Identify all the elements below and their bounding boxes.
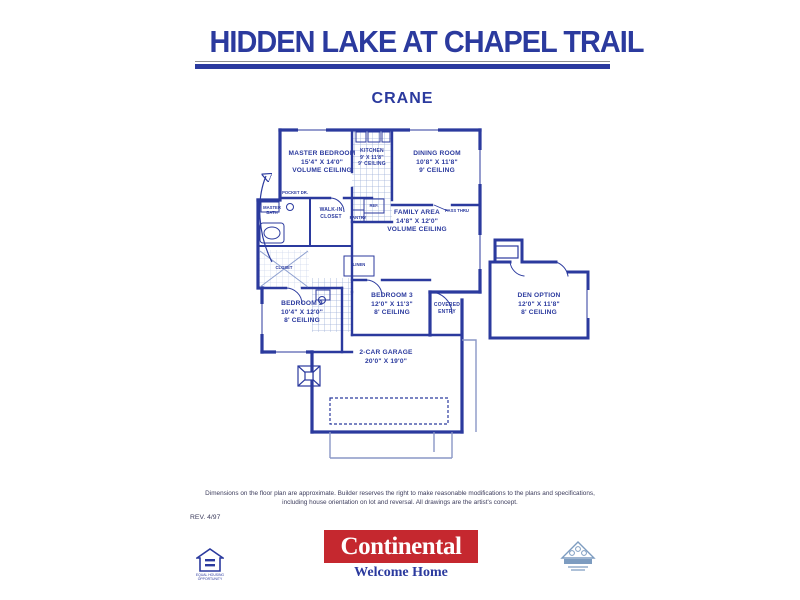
label-closet: CLOSET (276, 265, 293, 270)
disclaimer: Dimensions on the floor plan are approxi… (0, 489, 800, 508)
label-family-area: FAMILY AREA14'8" X 12'0"VOLUME CEILING (387, 209, 447, 235)
builder-association-logo (558, 540, 598, 574)
continental-logo: Continental (324, 530, 478, 563)
disclaimer-line-2: including house orientation on lot and r… (0, 498, 800, 507)
welcome-home-tagline: Welcome Home (324, 565, 478, 581)
label-pantry: PANTRY (350, 215, 367, 220)
continental-wordmark: Continental (341, 534, 462, 559)
label-walk-in-closet: WALK-INCLOSET (320, 207, 343, 220)
label-linen: LINEN (353, 262, 366, 267)
label-pocket-door: POCKET DR. (282, 190, 308, 195)
label-master-bedroom: MASTER BEDROOM15'4" X 14'0"VOLUME CEILIN… (289, 150, 356, 176)
label-bedroom-2: BEDROOM 210'4" X 12'0"8' CEILING (281, 300, 323, 326)
label-garage: 2-CAR GARAGE20'0" X 19'0" (359, 349, 412, 366)
brochure-page: HIDDEN LAKE AT CHAPEL TRAIL CRANE (0, 0, 800, 600)
equal-housing-caption: EQUAL HOUSING OPPORTUNITY (188, 573, 232, 582)
label-master-bath: MASTERBATH (263, 205, 281, 216)
label-kitchen: KITCHEN9' X 11'8"9' CEILING (358, 148, 386, 168)
label-pass-thru: PASS THRU (445, 208, 469, 213)
orientation-arrow (260, 176, 272, 262)
ac-unit (298, 366, 320, 386)
label-ref: REF. (369, 203, 378, 208)
den-option-walls (490, 240, 590, 338)
revision-note: REV. 4/97 (190, 514, 220, 521)
disclaimer-line-1: Dimensions on the floor plan are approxi… (0, 489, 800, 498)
equal-housing-icon (196, 548, 224, 572)
label-bedroom-3: BEDROOM 312'0" X 11'3"8' CEILING (371, 292, 413, 318)
label-den-option: DEN OPTION12'0" X 11'8"8' CEILING (517, 292, 560, 318)
label-covered-entry: COVEREDENTRY (434, 302, 460, 315)
label-dining-room: DINING ROOM10'8" X 11'8"9' CEILING (413, 150, 461, 176)
